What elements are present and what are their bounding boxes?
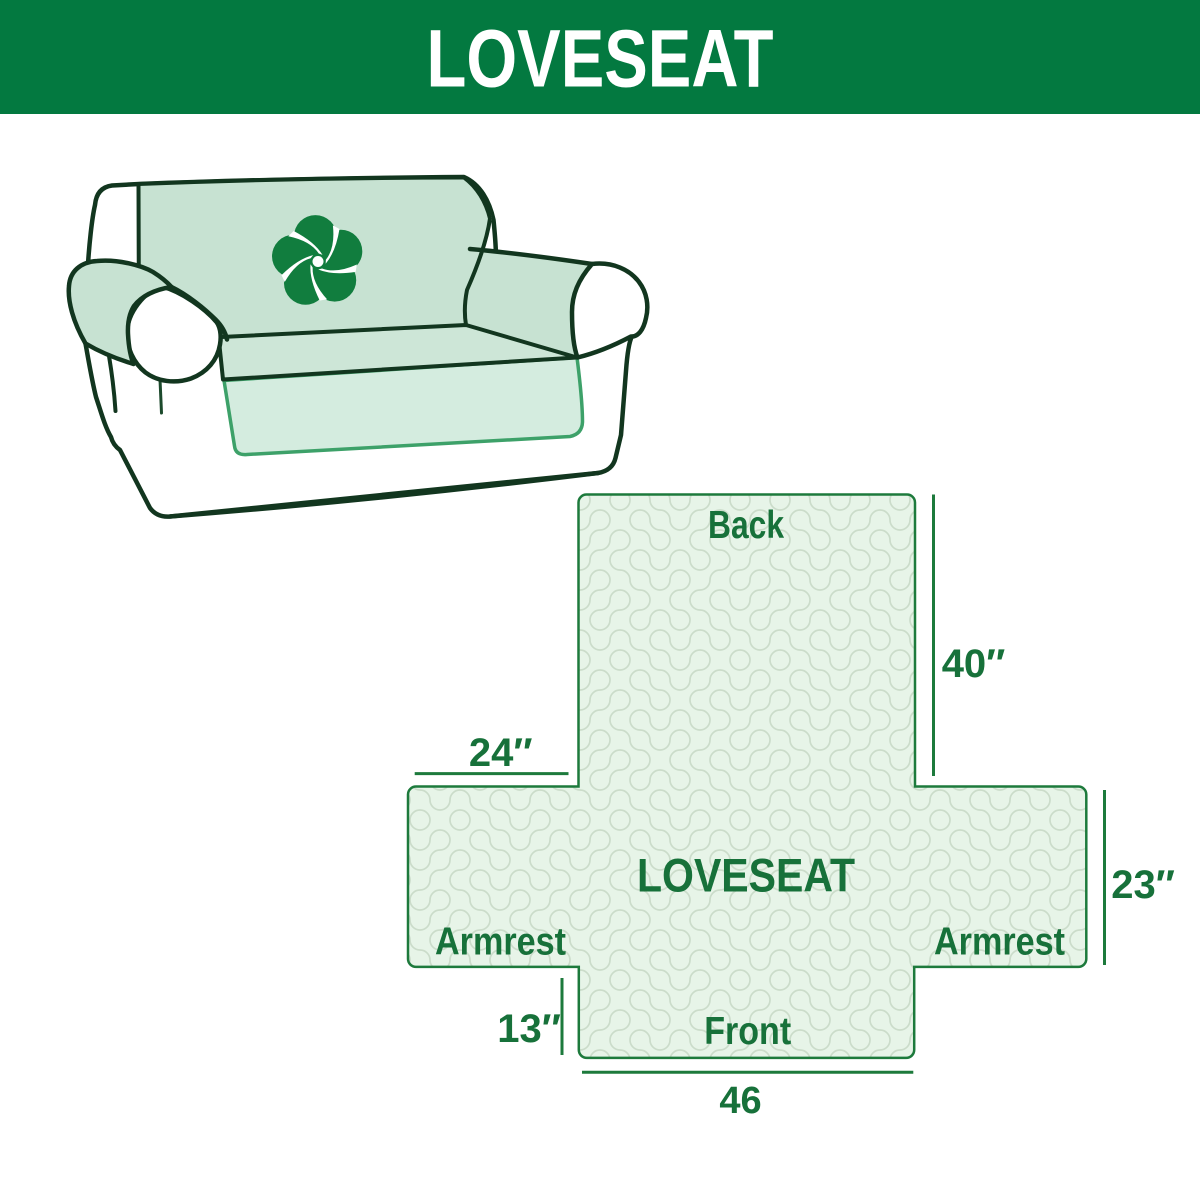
svg-text:13″: 13″ — [497, 1007, 561, 1051]
svg-text:46: 46 — [719, 1080, 761, 1122]
svg-text:23″: 23″ — [1111, 863, 1175, 907]
svg-text:40″: 40″ — [942, 642, 1006, 686]
svg-text:LOVESEAT: LOVESEAT — [427, 14, 774, 105]
svg-text:Armrest: Armrest — [435, 921, 566, 964]
svg-text:Armrest: Armrest — [934, 921, 1065, 964]
svg-text:Back: Back — [708, 504, 784, 547]
svg-text:Front: Front — [704, 1010, 791, 1053]
svg-text:LOVESEAT: LOVESEAT — [637, 848, 855, 901]
svg-text:24″: 24″ — [469, 731, 533, 775]
